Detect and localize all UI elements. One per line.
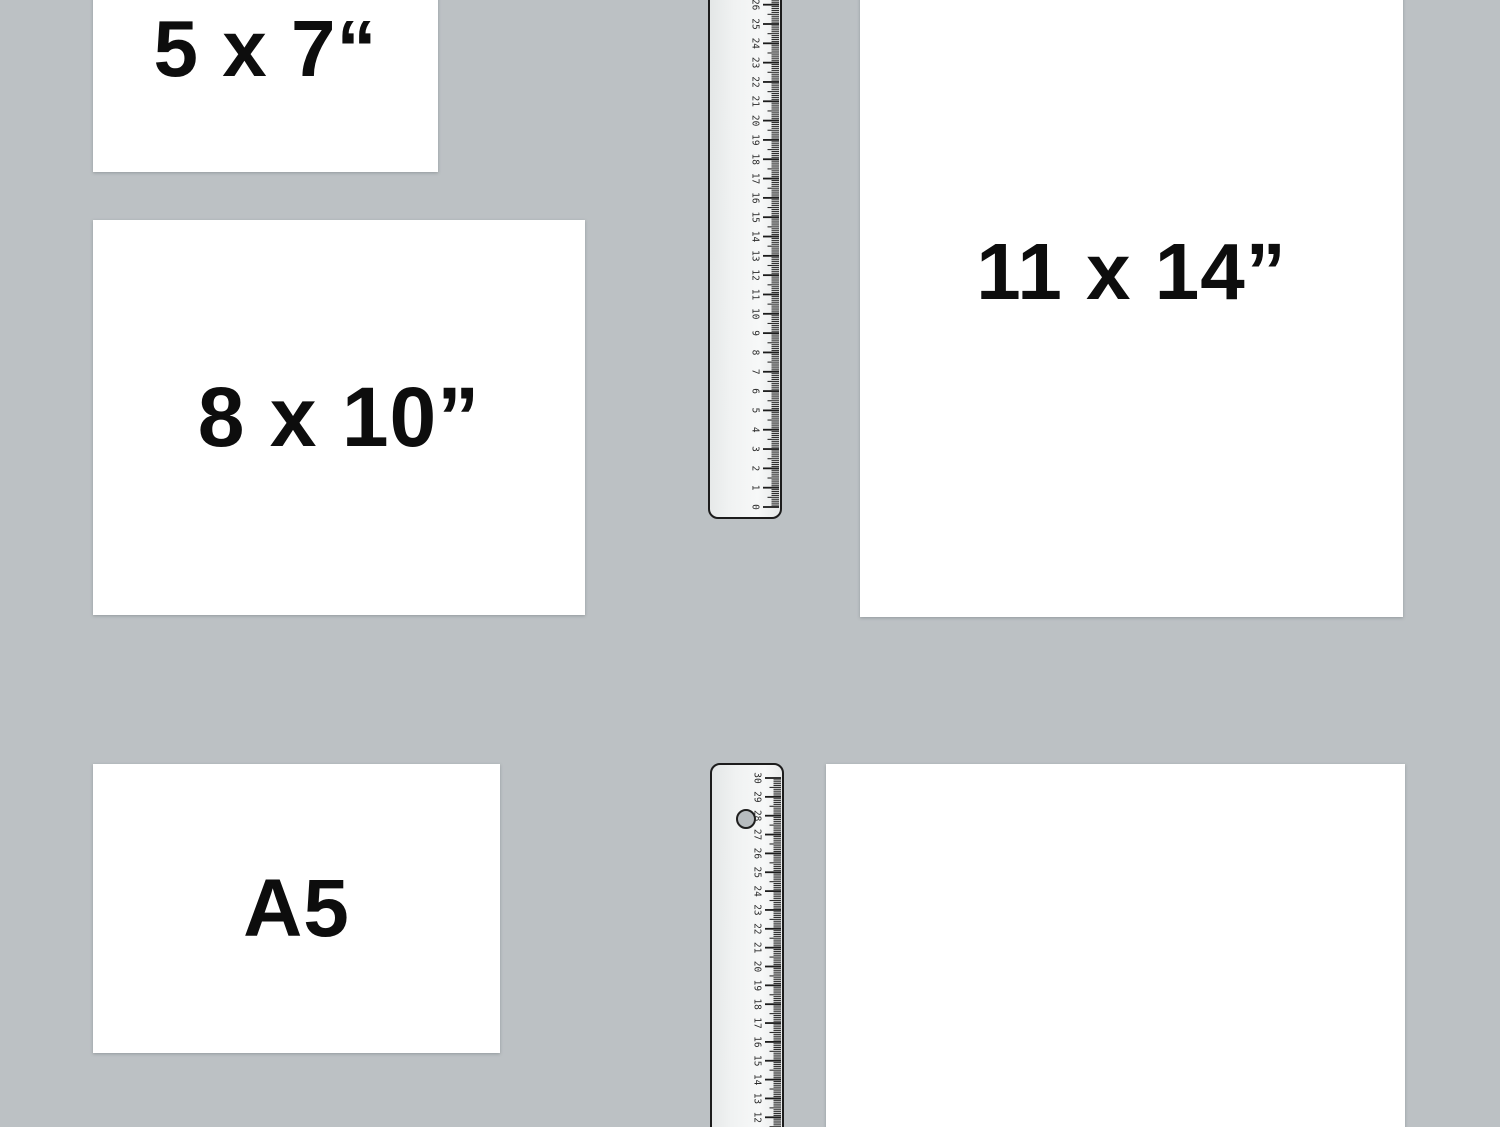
svg-text:16: 16	[750, 192, 761, 204]
svg-text:21: 21	[750, 96, 761, 108]
svg-text:7: 7	[750, 369, 761, 375]
card-a5-label: A5	[243, 862, 350, 956]
ruler-top-graphic: 2625242322212019181716151413121110987654…	[708, 0, 782, 520]
svg-text:13: 13	[750, 250, 761, 261]
card-a5: A5	[93, 764, 500, 1053]
svg-text:22: 22	[752, 923, 763, 934]
svg-text:14: 14	[752, 1074, 763, 1086]
svg-text:19: 19	[750, 134, 761, 146]
svg-text:1: 1	[750, 485, 761, 491]
svg-text:26: 26	[750, 0, 761, 11]
svg-text:21: 21	[752, 942, 763, 954]
svg-text:25: 25	[750, 18, 761, 29]
svg-text:14: 14	[750, 231, 761, 243]
card-11x14: 11 x 14”	[860, 0, 1403, 617]
svg-text:20: 20	[752, 961, 763, 973]
svg-text:6: 6	[750, 388, 761, 394]
svg-text:23: 23	[750, 57, 761, 68]
svg-text:18: 18	[752, 998, 763, 1010]
svg-text:13: 13	[752, 1093, 763, 1104]
svg-text:0: 0	[750, 504, 761, 510]
svg-text:8: 8	[750, 350, 761, 356]
svg-text:18: 18	[750, 154, 761, 166]
ruler-top-body	[709, 0, 781, 518]
card-5x7: 5 x 7“	[93, 0, 438, 172]
ruler-top: 2625242322212019181716151413121110987654…	[708, 0, 782, 520]
mockup-canvas: 5 x 7“ 8 x 10” 11 x 14” A5 2625242322212…	[0, 0, 1500, 1127]
svg-text:28: 28	[752, 810, 763, 822]
svg-text:20: 20	[750, 115, 761, 127]
svg-text:5: 5	[750, 408, 761, 414]
svg-text:24: 24	[750, 38, 761, 50]
svg-text:30: 30	[752, 772, 763, 784]
svg-text:25: 25	[752, 867, 763, 878]
svg-text:10: 10	[750, 308, 761, 320]
svg-text:29: 29	[752, 791, 763, 803]
svg-text:15: 15	[750, 211, 761, 222]
svg-text:16: 16	[752, 1036, 763, 1048]
svg-text:11: 11	[750, 289, 761, 301]
svg-text:12: 12	[750, 269, 761, 280]
svg-text:19: 19	[752, 980, 763, 992]
card-unlabeled	[826, 764, 1405, 1127]
ruler-bottom-graphic: 30292827262524232221201918171615141312	[710, 763, 784, 1127]
svg-text:17: 17	[750, 173, 761, 184]
svg-text:23: 23	[752, 904, 763, 915]
card-5x7-label: 5 x 7“	[154, 3, 378, 95]
card-11x14-label: 11 x 14”	[976, 226, 1287, 318]
svg-text:24: 24	[752, 885, 763, 897]
svg-text:9: 9	[750, 330, 761, 336]
svg-text:15: 15	[752, 1055, 763, 1066]
svg-text:26: 26	[752, 848, 763, 860]
card-8x10-label: 8 x 10”	[198, 369, 481, 466]
svg-text:4: 4	[750, 427, 761, 433]
svg-text:17: 17	[752, 1017, 763, 1028]
ruler-bottom: 30292827262524232221201918171615141312	[710, 763, 784, 1127]
svg-text:2: 2	[750, 465, 761, 471]
card-8x10: 8 x 10”	[93, 220, 585, 615]
svg-text:3: 3	[750, 446, 761, 452]
svg-text:22: 22	[750, 76, 761, 87]
svg-text:12: 12	[752, 1112, 763, 1123]
svg-text:27: 27	[752, 829, 763, 840]
